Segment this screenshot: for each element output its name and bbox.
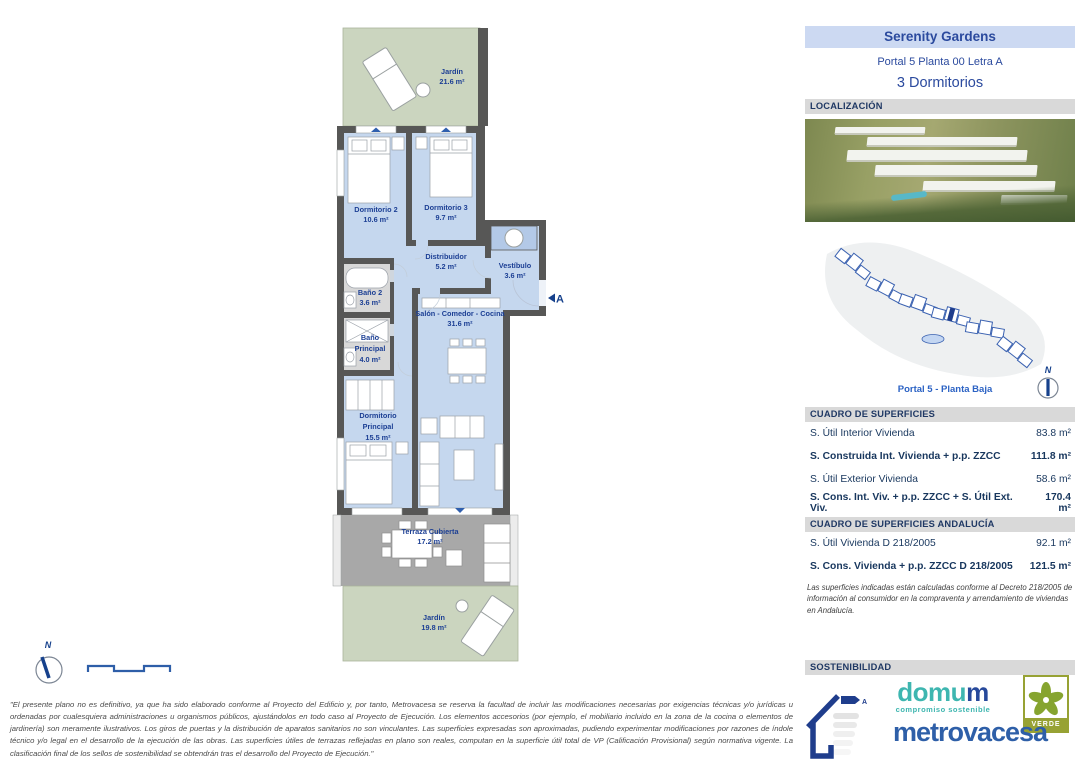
- project-title: Serenity Gardens: [805, 26, 1075, 48]
- site-compass: N: [1038, 365, 1058, 398]
- svg-text:Dormitorio 3: Dormitorio 3: [424, 203, 467, 212]
- domum-tagline: compromiso sostenible: [873, 706, 1013, 714]
- svg-text:Jardín: Jardín: [423, 613, 445, 622]
- compass-needle: [42, 657, 49, 678]
- garden-side-table: [456, 600, 468, 612]
- garden-bottom: Jardín 19.8 m²: [343, 586, 518, 661]
- svg-text:Principal: Principal: [355, 344, 386, 353]
- svg-text:4.0 m²: 4.0 m²: [359, 355, 381, 364]
- svg-text:15.5 m²: 15.5 m²: [365, 433, 391, 442]
- terrace: Terraza Cubierta 17.2 m²: [333, 515, 518, 586]
- energy-rating-house-icon: A: [805, 683, 871, 763]
- svg-text:Vestíbulo: Vestíbulo: [499, 261, 532, 270]
- surface-row: S. Útil Interior Vivienda83.8 m²: [805, 422, 1075, 445]
- svg-text:Distribuidor: Distribuidor: [425, 252, 467, 261]
- entrance-letter: A: [556, 294, 564, 306]
- surface-row: S. Útil Vivienda D 218/200592.1 m²: [805, 532, 1075, 555]
- sustainability-logos: A domum compromiso sostenible: [805, 679, 1075, 764]
- photo-building: [835, 127, 926, 135]
- vestibule-closet: [491, 226, 537, 250]
- surface-row: S. Cons. Vivienda + p.p. ZZCC D 218/2005…: [805, 555, 1075, 578]
- aerial-photo: [805, 119, 1075, 222]
- disclaimer-text: "El presente plano no es definitivo, ya …: [10, 699, 793, 760]
- section-sustainability: SOSTENIBILIDAD: [805, 660, 1075, 675]
- entrance-marker: A: [548, 294, 564, 306]
- section-surfaces: CUADRO DE SUPERFICIES: [805, 407, 1075, 422]
- svg-text:Baño 2: Baño 2: [358, 288, 382, 297]
- photo-building: [874, 165, 1037, 177]
- metrovacesa-logo: metrovacesa: [865, 717, 1075, 748]
- svg-text:Dormitorio: Dormitorio: [359, 411, 397, 420]
- site-pool: [922, 335, 944, 344]
- garden-top: Jardín 21.6 m²: [343, 28, 488, 126]
- svg-text:17.2 m²: 17.2 m²: [417, 537, 443, 546]
- bedrooms-count: 3 Dormitorios: [805, 75, 1075, 91]
- site-plan: Portal 5 - Planta Baja N: [805, 226, 1075, 404]
- room-label: Jardín: [441, 67, 463, 76]
- svg-text:Salón - Comedor - Cocina: Salón - Comedor - Cocina: [415, 309, 505, 318]
- photo-building: [866, 137, 1017, 147]
- floorplan-drawing: Jardín 21.6 m²: [328, 18, 568, 678]
- svg-text:3.6 m²: 3.6 m²: [504, 271, 526, 280]
- section-surfaces-andalucia: CUADRO DE SUPERFICIES ANDALUCÍA: [805, 517, 1075, 532]
- domum-logo: domum compromiso sostenible: [873, 679, 1013, 714]
- svg-text:Dormitorio 2: Dormitorio 2: [354, 205, 397, 214]
- surface-row: S. Construida Int. Vivienda + p.p. ZZCC1…: [805, 445, 1075, 468]
- unit-reference: Portal 5 Planta 00 Letra A: [805, 56, 1075, 68]
- svg-text:3.6 m²: 3.6 m²: [359, 298, 381, 307]
- svg-text:19.8 m²: 19.8 m²: [421, 623, 447, 632]
- svg-text:10.6 m²: 10.6 m²: [363, 215, 389, 224]
- section-location: LOCALIZACIÓN: [805, 99, 1075, 114]
- plan-sheet: Jardín 21.6 m²: [0, 0, 1080, 764]
- compass-north-label: N: [45, 640, 52, 650]
- surface-row: S. Útil Exterior Vivienda58.6 m²: [805, 468, 1075, 491]
- info-panel: Serenity Gardens Portal 5 Planta 00 Letr…: [805, 26, 1075, 764]
- site-plan-caption: Portal 5 - Planta Baja: [898, 384, 993, 395]
- leaf-icon: [1025, 679, 1067, 719]
- svg-text:31.6 m²: 31.6 m²: [447, 319, 473, 328]
- svg-text:5.2 m²: 5.2 m²: [435, 262, 457, 271]
- room-area: 21.6 m²: [439, 77, 465, 86]
- photo-building: [846, 150, 1027, 162]
- surface-row: S. Cons. Int. Viv. + p.p. ZZCC + S. Útil…: [805, 491, 1075, 514]
- svg-text:N: N: [1045, 365, 1052, 375]
- compass-and-scale: N: [18, 634, 188, 704]
- surfaces-note: Las superficies indicadas están calculad…: [805, 582, 1075, 616]
- svg-text:Baño: Baño: [361, 333, 380, 342]
- scale-bar: [88, 666, 170, 672]
- svg-text:Principal: Principal: [363, 422, 394, 431]
- compass-icon: [36, 657, 62, 683]
- garden-side-table: [416, 83, 430, 97]
- svg-text:9.7 m²: 9.7 m²: [435, 213, 457, 222]
- energy-rating-letter: A: [862, 699, 867, 706]
- svg-text:Terraza Cubierta: Terraza Cubierta: [401, 527, 459, 536]
